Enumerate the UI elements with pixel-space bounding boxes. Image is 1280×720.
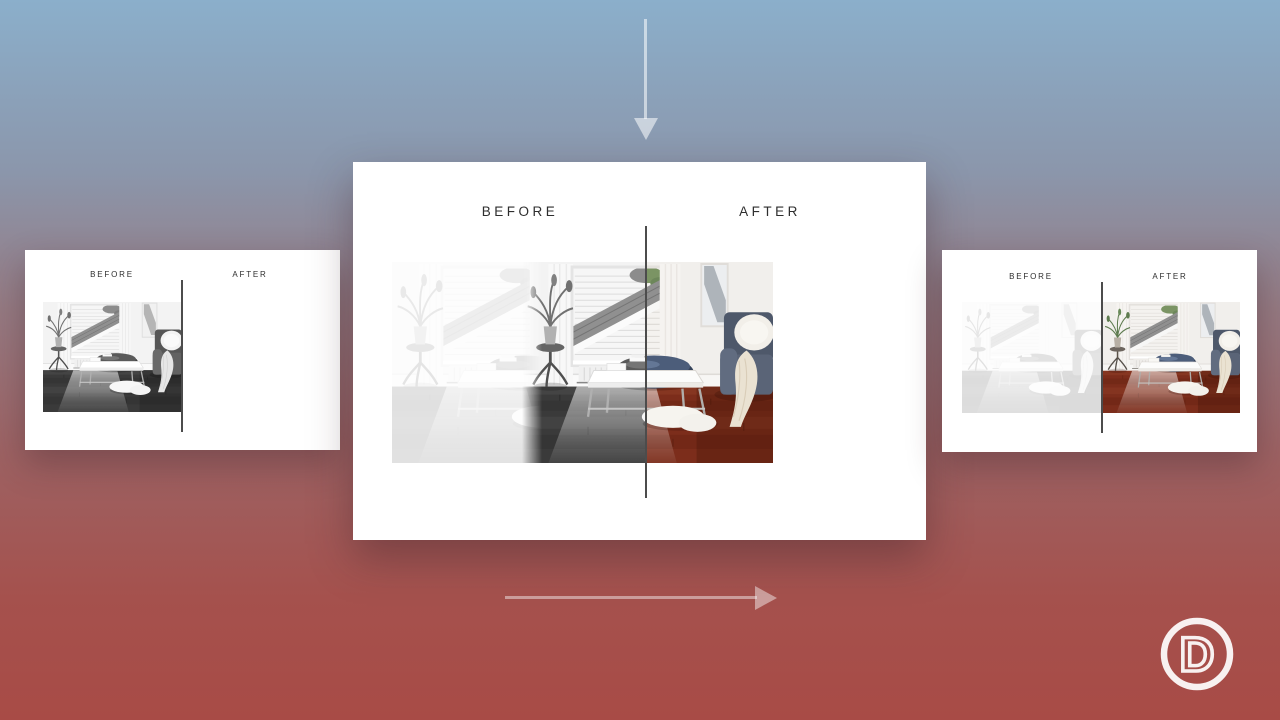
slider-divider-handle[interactable] <box>1101 282 1103 433</box>
comparison-room-image <box>522 262 773 463</box>
after-label: AFTER <box>232 270 267 279</box>
gradient-background: { "cards": { "left": { "before_label": "… <box>0 0 1280 720</box>
before-label: BEFORE <box>1009 272 1053 281</box>
before-after-card-end-state: BEFORE AFTER <box>942 250 1257 452</box>
before-room-image <box>43 302 182 412</box>
right-arrow-head <box>755 586 777 610</box>
before-after-card-start-state: BEFORE AFTER <box>25 250 340 450</box>
right-arrow-shaft <box>505 596 757 599</box>
after-room-image <box>1102 302 1240 413</box>
logo-letter: D <box>1180 629 1215 682</box>
faded-before-room-image <box>962 302 1102 413</box>
before-after-card-mid-state: BEFORE AFTER <box>353 162 926 540</box>
down-arrow-shaft <box>644 19 647 119</box>
after-label: AFTER <box>739 204 801 219</box>
slider-divider-handle[interactable] <box>645 226 647 498</box>
divi-logo: D <box>1154 611 1240 697</box>
slider-divider-handle[interactable] <box>181 280 183 432</box>
before-label: BEFORE <box>482 204 559 219</box>
before-label: BEFORE <box>90 270 134 279</box>
down-arrow-head <box>634 118 658 140</box>
after-label: AFTER <box>1152 272 1187 281</box>
